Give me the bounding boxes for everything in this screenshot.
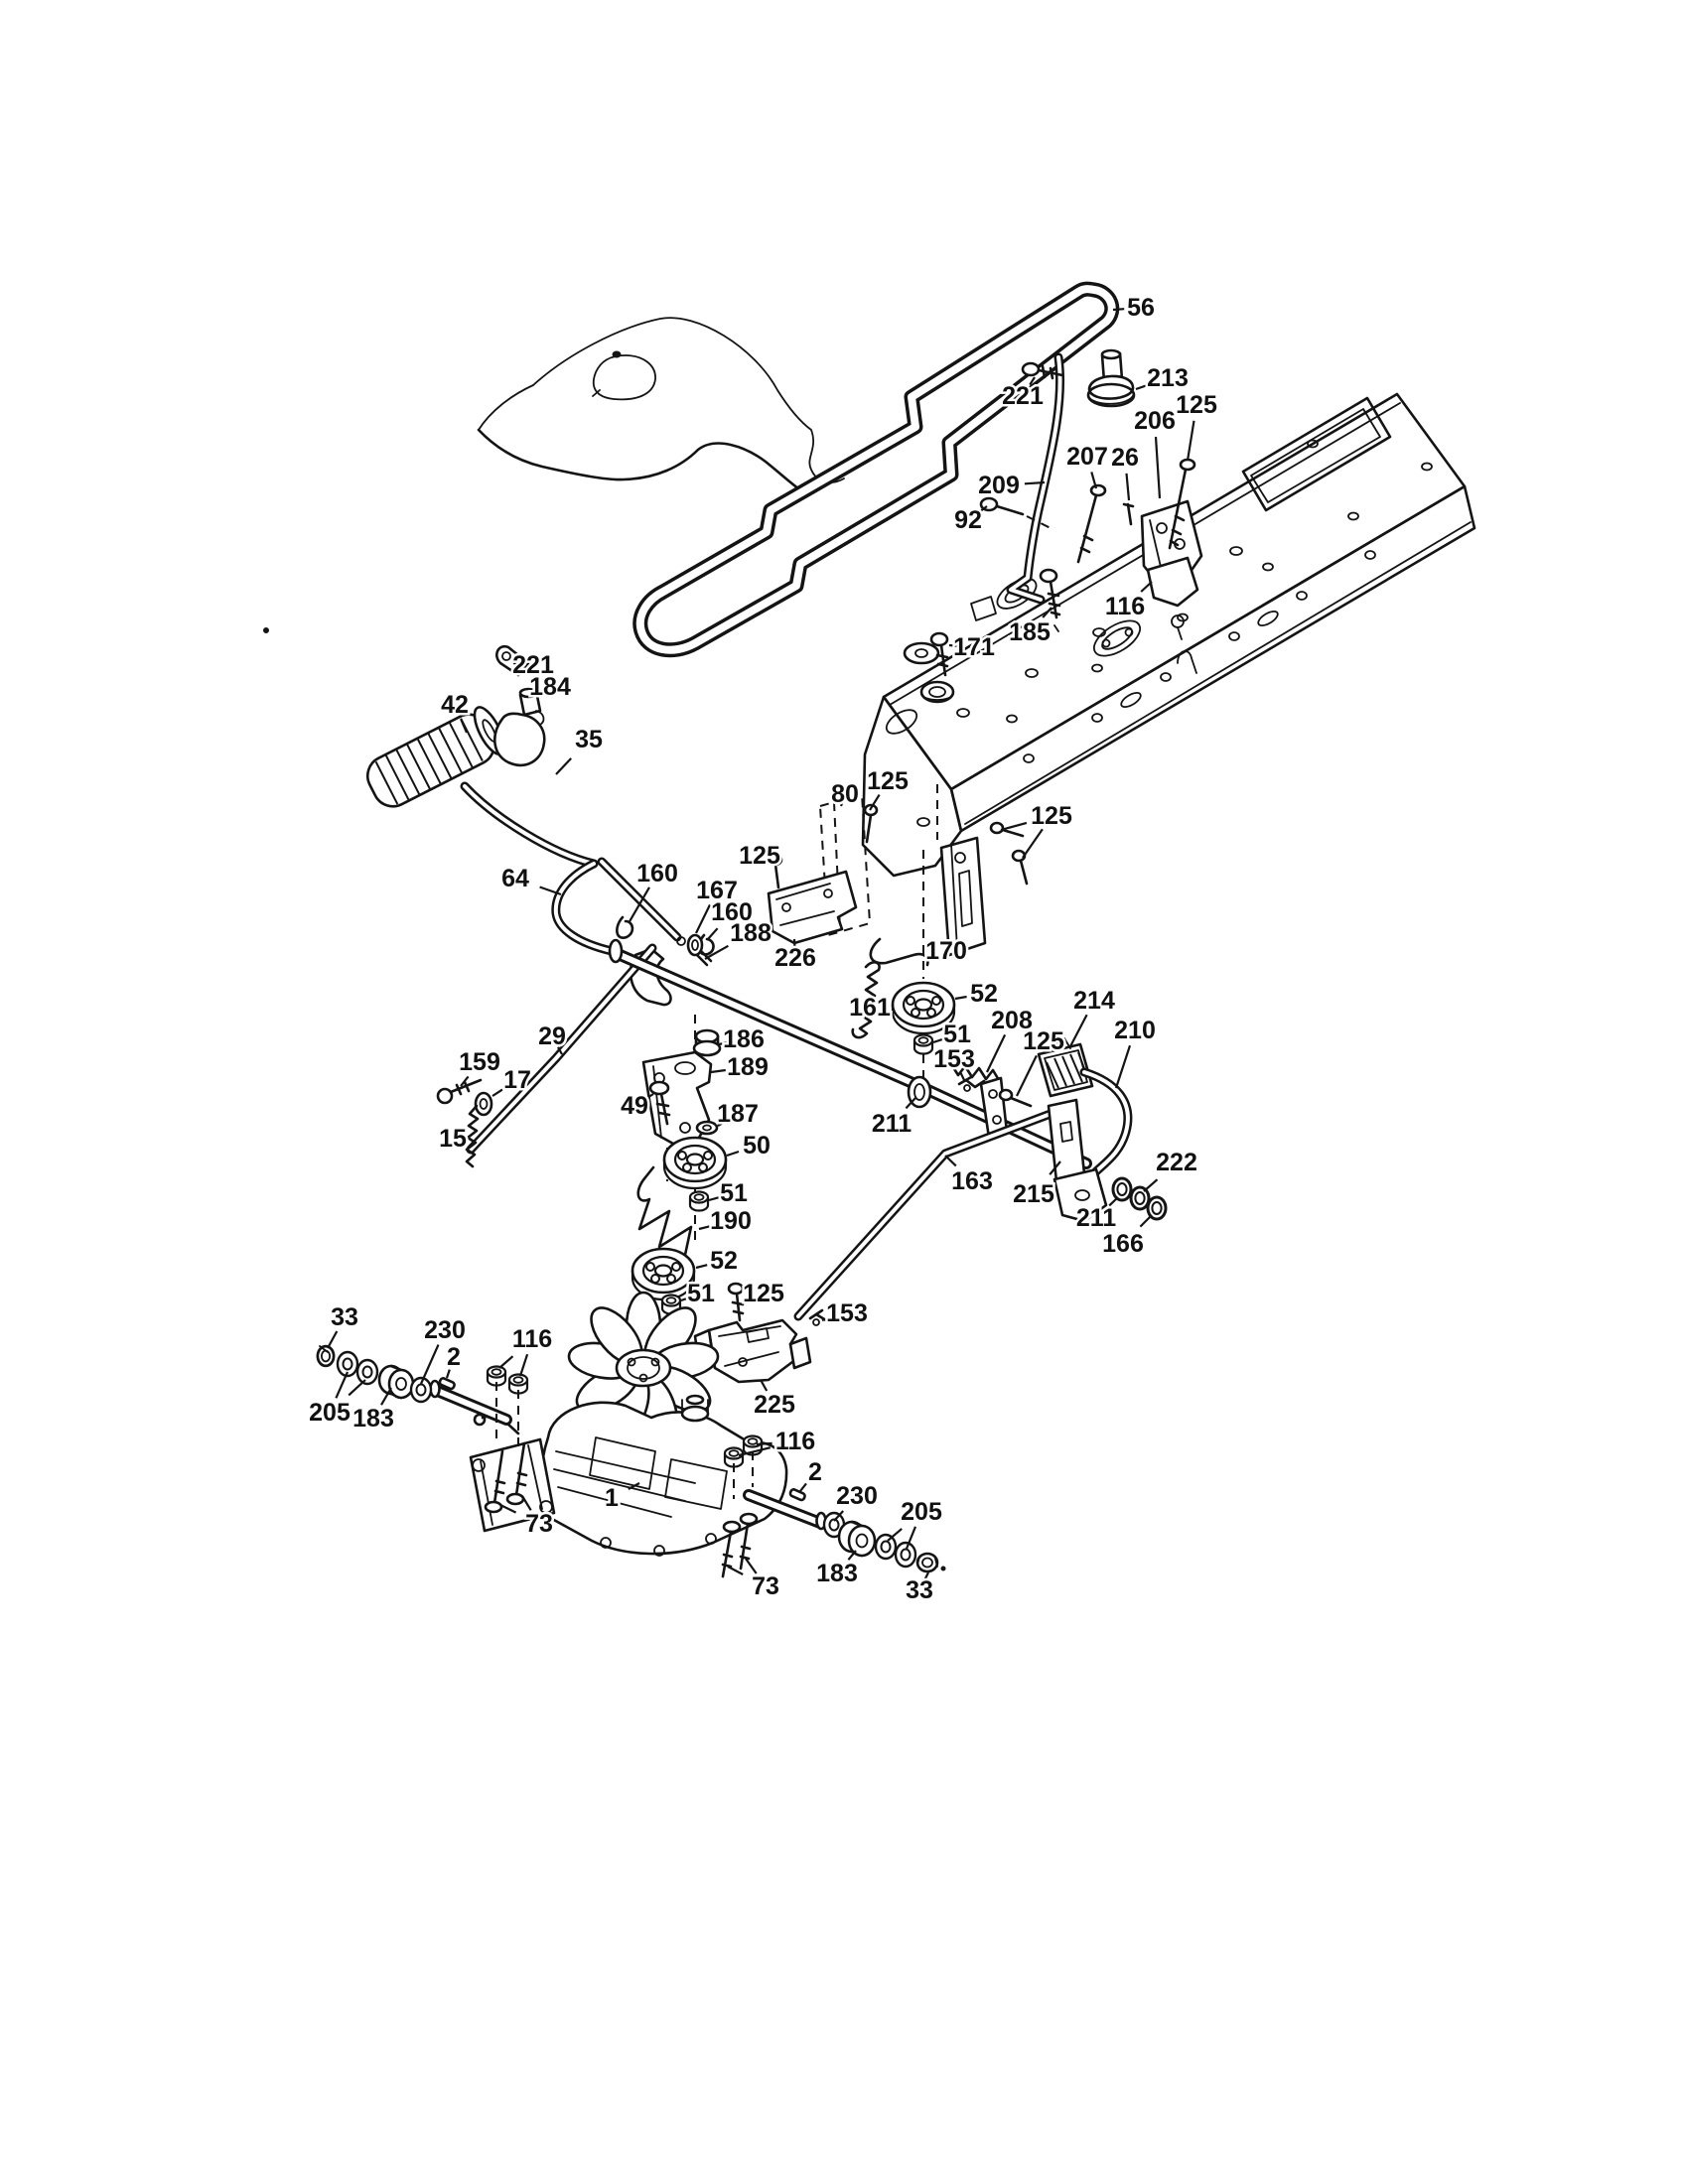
callout-2: 2: [808, 1458, 822, 1486]
leader-line-206: [1156, 437, 1160, 498]
washer-205-right-1: [876, 1535, 896, 1559]
callout-159: 159: [459, 1048, 500, 1076]
callout-125: 125: [867, 767, 909, 795]
axle-left-hardware: [318, 1346, 527, 1512]
callout-64: 64: [501, 865, 529, 892]
leader-line-2: [800, 1483, 806, 1491]
nut-33-right: [917, 1554, 937, 1571]
pedal-pad-42: [360, 703, 509, 813]
callout-214: 214: [1073, 987, 1115, 1015]
leader-line-214: [1069, 1015, 1087, 1048]
callout-189: 189: [727, 1053, 769, 1081]
callout-163: 163: [951, 1167, 993, 1195]
leader-line-166: [1140, 1215, 1152, 1227]
leader-line-125: [1188, 421, 1194, 461]
callout-35: 35: [575, 726, 603, 753]
callout-209: 209: [978, 472, 1020, 499]
leader-line-205: [349, 1380, 365, 1395]
leader-line-230: [421, 1345, 439, 1384]
callout-51: 51: [943, 1021, 971, 1048]
clutch-pulley-50: [664, 1138, 726, 1188]
leader-line-208: [987, 1034, 1005, 1072]
callout-125: 125: [739, 842, 780, 870]
callout-2: 2: [447, 1343, 461, 1371]
leader-line-167: [696, 904, 710, 933]
callout-230: 230: [424, 1316, 466, 1344]
exploded-parts-diagram: 5622121312520620726209921161851712211844…: [0, 0, 1684, 2184]
leader-line-51: [933, 1039, 943, 1042]
bolt-73-right-2: [741, 1514, 757, 1569]
leader-line-222: [1144, 1179, 1158, 1191]
callout-183: 183: [816, 1560, 858, 1587]
leader-line-125: [1001, 823, 1027, 830]
callout-125: 125: [1176, 391, 1217, 419]
fender-dot: [613, 351, 621, 357]
key-2-right: [789, 1488, 806, 1500]
spring-15: [467, 1106, 478, 1166]
callout-116: 116: [775, 1428, 815, 1455]
callout-125: 125: [1031, 802, 1072, 830]
washer-187: [697, 1122, 717, 1134]
callout-49: 49: [621, 1092, 648, 1120]
callout-221: 221: [1002, 382, 1044, 410]
callout-51: 51: [720, 1179, 748, 1207]
callout-29: 29: [538, 1023, 566, 1050]
callout-211: 211: [1076, 1204, 1116, 1232]
callout-52: 52: [710, 1247, 738, 1275]
washer-167: [688, 935, 702, 955]
transaxle-body: [541, 1396, 786, 1556]
rod-64: [556, 864, 612, 951]
callout-188: 188: [730, 919, 772, 947]
grommet-186: [694, 1030, 720, 1055]
leader-line-116: [520, 1354, 527, 1376]
callout-170: 170: [925, 937, 967, 965]
snap-ring-33-left: [318, 1346, 334, 1366]
leader-line-51: [709, 1197, 719, 1200]
spacer-183-right: [839, 1522, 875, 1556]
callout-205: 205: [901, 1498, 942, 1526]
bracket-215: [1049, 1100, 1106, 1221]
nut-51-upper: [914, 1035, 932, 1054]
washer-17: [476, 1093, 491, 1115]
leader-line-56: [1113, 309, 1124, 310]
callout-153: 153: [933, 1045, 975, 1073]
callout-210: 210: [1114, 1017, 1156, 1044]
callout-51: 51: [687, 1280, 715, 1307]
leader-line-209: [1025, 482, 1045, 483]
callout-56: 56: [1127, 294, 1155, 322]
callout-225: 225: [754, 1391, 795, 1419]
callout-33: 33: [331, 1303, 358, 1331]
leader-line-116: [757, 1443, 772, 1444]
callout-153: 153: [826, 1299, 868, 1327]
callout-92: 92: [954, 506, 982, 534]
leader-line-125: [1017, 1055, 1037, 1096]
callout-222: 222: [1156, 1149, 1197, 1176]
bolt-125-a: [865, 805, 877, 842]
callout-190: 190: [710, 1207, 752, 1235]
callout-160: 160: [636, 860, 678, 887]
leader-line-225: [761, 1380, 767, 1391]
pedal-rod-35: [465, 786, 594, 864]
callout-183: 183: [352, 1405, 394, 1433]
parts-diagram-page: 5622121312520620726209921161851712211844…: [0, 0, 1684, 2184]
nut-51-mid: [690, 1192, 708, 1211]
spacer-183-left: [379, 1366, 413, 1398]
leader-line-125: [1023, 829, 1043, 858]
callout-207: 207: [1066, 443, 1108, 471]
callout-184: 184: [529, 673, 571, 701]
callout-73: 73: [752, 1572, 779, 1600]
lever-170: [871, 939, 928, 965]
callout-226: 226: [774, 944, 816, 972]
callout-52: 52: [970, 980, 998, 1008]
leader-line-33: [328, 1331, 337, 1348]
leader-line-73: [746, 1559, 757, 1573]
leader-line-160: [708, 928, 718, 939]
callout-50: 50: [743, 1132, 771, 1160]
callout-73: 73: [525, 1510, 553, 1538]
callout-17: 17: [503, 1066, 531, 1094]
callout-211: 211: [872, 1110, 912, 1138]
fender-silhouette: [479, 318, 844, 494]
washer-205-left-2: [357, 1360, 377, 1384]
bolt-207: [1078, 485, 1105, 562]
callout-206: 206: [1134, 407, 1176, 435]
cap-213: [1088, 350, 1134, 406]
leader-line-52: [696, 1265, 707, 1268]
eyebolt-159: [438, 1080, 481, 1103]
top-hardware: [905, 350, 1201, 702]
callout-1: 1: [605, 1484, 619, 1512]
callout-166: 166: [1102, 1230, 1144, 1258]
page-dot: [264, 628, 269, 633]
bracket-206-116: [1142, 501, 1201, 606]
bolt-125-lower: [729, 1284, 743, 1320]
frame-notch: [1178, 651, 1196, 673]
callout-15: 15: [439, 1125, 467, 1153]
callout-26: 26: [1111, 444, 1139, 472]
fender-hole: [593, 355, 655, 399]
callout-230: 230: [836, 1482, 878, 1510]
leader-line-189: [711, 1070, 726, 1072]
callout-185: 185: [1009, 618, 1051, 646]
callout-80: 80: [831, 780, 859, 808]
callout-215: 215: [1013, 1180, 1054, 1208]
callout-116: 116: [512, 1325, 552, 1353]
leader-line-17: [492, 1090, 502, 1096]
callout-161: 161: [849, 994, 891, 1022]
brake-pedal-assembly: [1039, 1038, 1166, 1221]
washer-205-right-2: [896, 1543, 915, 1567]
shift-rod-163: [798, 1114, 1051, 1316]
callout-42: 42: [441, 691, 469, 719]
callout-116: 116: [1105, 593, 1145, 620]
leader-line-210: [1116, 1045, 1130, 1088]
bracket-226: [769, 872, 856, 943]
callout-layer: 5622121312520620726209921161851712211844…: [309, 294, 1217, 1604]
callout-187: 187: [717, 1100, 759, 1128]
frame-rear-opening: [1243, 398, 1390, 510]
callout-171: 171: [953, 633, 995, 661]
leader-line-35: [556, 758, 571, 774]
callout-125: 125: [1023, 1027, 1064, 1055]
callout-213: 213: [1147, 364, 1189, 392]
callout-125: 125: [743, 1280, 784, 1307]
washer-211-right: [1113, 1178, 1131, 1200]
leader-line-163: [945, 1156, 956, 1165]
leader-line-26: [1127, 474, 1130, 500]
leader-line-50: [727, 1152, 739, 1156]
callout-205: 205: [309, 1399, 351, 1427]
leader-line-116: [499, 1356, 513, 1368]
leader-line-205: [336, 1372, 348, 1398]
leader-line-52: [955, 997, 967, 999]
callout-33: 33: [906, 1576, 933, 1604]
stud-26: [1124, 504, 1133, 524]
callout-186: 186: [723, 1025, 765, 1053]
